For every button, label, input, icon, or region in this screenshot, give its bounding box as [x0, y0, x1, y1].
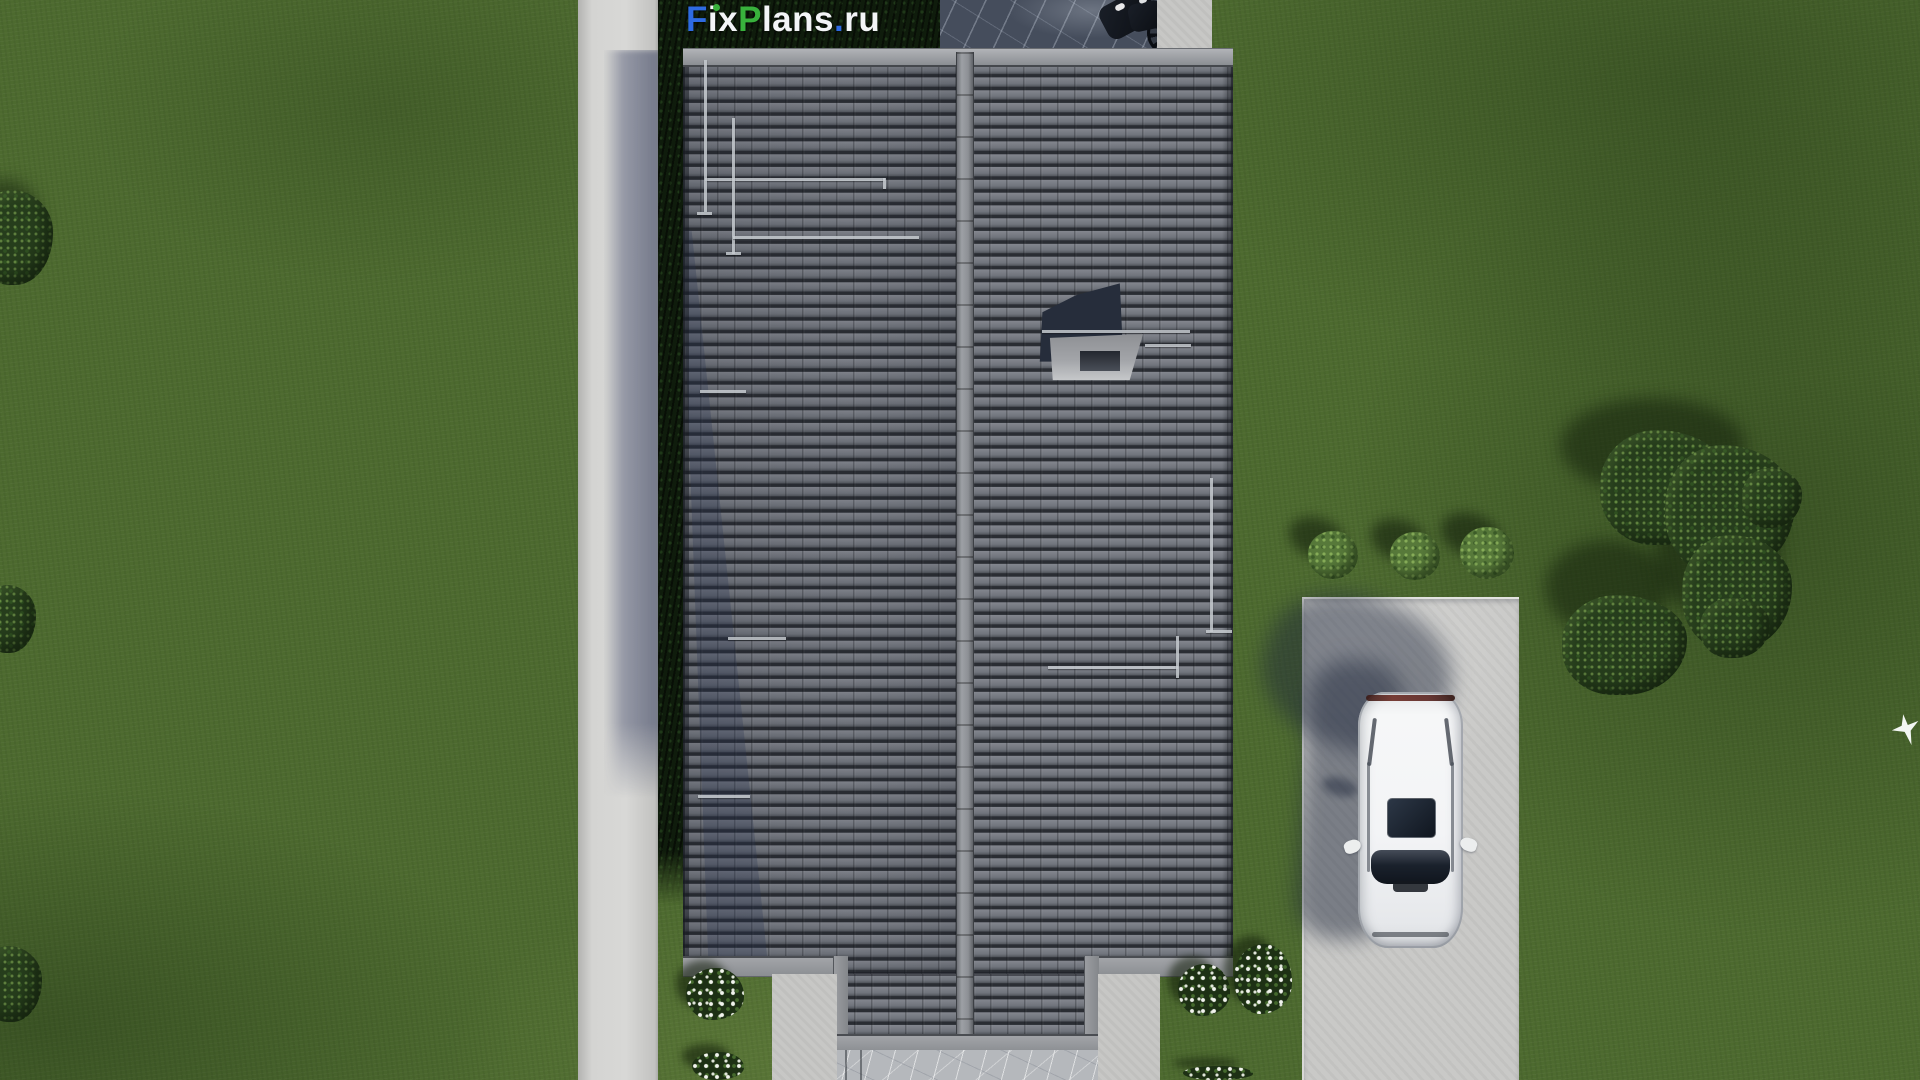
car-side-rail-right — [1451, 762, 1454, 872]
roof-rail — [733, 236, 919, 239]
roof-rail — [1042, 330, 1190, 333]
car-a-pillar-right — [1444, 718, 1454, 766]
car-a-pillar-left — [1367, 718, 1377, 766]
step-shadow-line — [845, 1050, 847, 1080]
roof-rail — [1048, 666, 1178, 669]
roof-rail — [883, 178, 886, 189]
chimney-flue — [1080, 351, 1120, 371]
roof-rail — [726, 252, 741, 255]
entrance-walkway — [772, 974, 837, 1080]
edge-bush — [0, 946, 42, 1022]
chimney-cap — [1048, 334, 1143, 382]
tree-canopy — [1562, 595, 1687, 695]
logo-part-ru: ru — [844, 0, 880, 39]
step-shadow-line — [860, 1050, 862, 1080]
flower-bush — [1178, 964, 1230, 1016]
logo-part-f: F — [686, 0, 708, 39]
flower-bush — [686, 968, 744, 1020]
aerial-site-render: FixPlans.ru — [0, 0, 1920, 1080]
tree-canopy — [1700, 598, 1770, 658]
car-side-rail-left — [1367, 762, 1370, 872]
stone-entry-path — [837, 1050, 1098, 1080]
round-bush — [1390, 532, 1440, 580]
car-bumper-line — [1372, 932, 1449, 937]
edge-tree — [0, 190, 53, 285]
logo-part-dot: . — [834, 0, 844, 39]
roof-rail — [732, 118, 735, 254]
logo-part-lans: lans — [762, 0, 834, 39]
roof-rail — [704, 60, 707, 212]
roof-rail — [698, 795, 750, 798]
hedge-side-strip — [658, 0, 684, 905]
car-sunroof — [1387, 798, 1436, 838]
roof-right-trim — [1222, 52, 1233, 974]
round-bush — [1460, 527, 1514, 579]
roof-rail — [1145, 344, 1191, 347]
roof-rail — [700, 390, 746, 393]
roof-rail — [1206, 630, 1232, 633]
roof-rail — [1176, 636, 1179, 678]
bird-icon — [1889, 711, 1920, 748]
car-rear-window — [1371, 850, 1450, 884]
logo-part-p: P — [738, 0, 762, 39]
round-bush — [1308, 531, 1358, 579]
logo-i-tittle — [713, 4, 720, 11]
roof-rail — [728, 637, 786, 640]
car-trunk-gap — [1393, 881, 1428, 892]
car-cowl — [1366, 695, 1455, 701]
roof-center-ridge — [956, 52, 974, 1034]
flower-bush — [1234, 944, 1292, 1014]
edge-bush — [0, 585, 36, 653]
roof-left-trim — [683, 52, 689, 974]
flower-bush — [1183, 1066, 1253, 1080]
roof-rail — [697, 212, 712, 215]
flower-bush — [692, 1052, 744, 1080]
car-top-view — [1358, 692, 1463, 948]
roof-rail — [1210, 478, 1213, 632]
side-walkway-right — [1098, 974, 1160, 1080]
house-shadow — [604, 50, 660, 798]
